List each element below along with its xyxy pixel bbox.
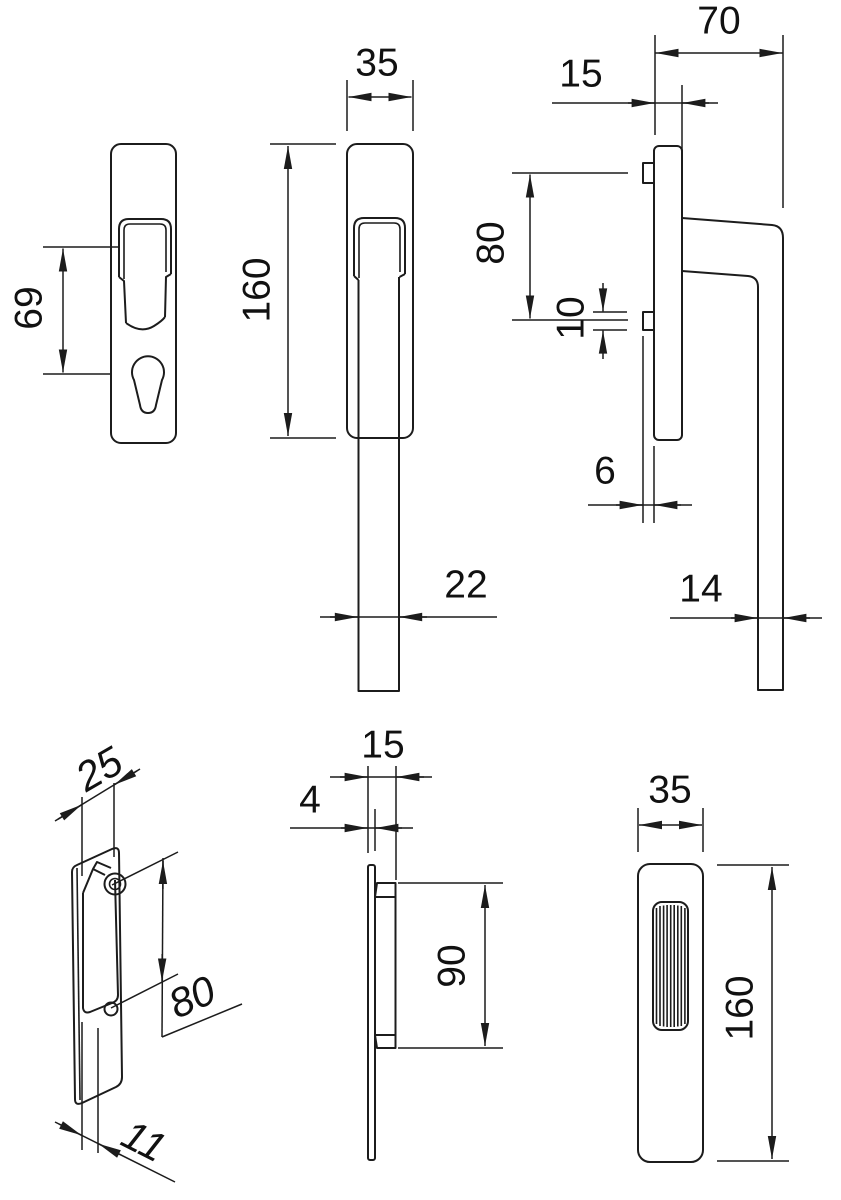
carriage-plate-edge-inner: [77, 868, 80, 1100]
view-pull-front: 35 160: [638, 769, 789, 1163]
grip-recess-inner: [124, 224, 166, 279]
dim-label-80: 80: [162, 967, 223, 1028]
dim-label-14: 14: [679, 568, 722, 611]
dim-label-160: 160: [719, 975, 762, 1040]
extension-lines-10: [593, 312, 627, 330]
handle-plate-outline: [347, 144, 413, 438]
grip-recess-outer: [119, 219, 171, 277]
dim-label-160: 160: [236, 257, 279, 322]
dim-label-10: 10: [550, 296, 593, 339]
pull-plate-side-outline: [368, 865, 375, 1160]
dim-label-15: 15: [361, 724, 404, 767]
extension-lines-6: [643, 336, 654, 523]
view-handle-side: 70 15 80 10 6 14: [470, 0, 823, 690]
dim-label-22: 22: [444, 564, 487, 607]
dim-label-25: 25: [67, 738, 131, 801]
pull-box-outline: [375, 883, 396, 1048]
grip-recess-outer: [354, 218, 405, 276]
technical-drawing-canvas: 69 35 160 22 70 15 80: [0, 0, 841, 1200]
dim-label-80: 80: [470, 221, 513, 264]
grip-bar-outline: [359, 277, 400, 691]
view-carriage-oblique: 25 80 11: [55, 738, 242, 1182]
dim-label-4: 4: [299, 779, 321, 822]
extension-lines-15: [368, 766, 396, 880]
dim-label-70: 70: [697, 0, 740, 43]
view-backplate-front: 69: [8, 144, 177, 443]
dim-label-35: 35: [355, 42, 398, 85]
extension-lines-70: [655, 35, 783, 208]
grip-lower-edge: [119, 274, 171, 329]
dim-arrow-25-left: [58, 805, 82, 819]
extension-lines-160: [270, 144, 336, 438]
side-plate-outline: [654, 146, 682, 440]
dim-label-11: 11: [115, 1111, 174, 1171]
fixing-lug-bottom: [643, 312, 654, 330]
dim-arrow-11-left: [59, 1124, 82, 1135]
euro-cylinder-keyhole: [132, 356, 164, 413]
technical-drawing-page: 69 35 160 22 70 15 80: [0, 0, 841, 1200]
fixing-lug-top: [643, 163, 654, 183]
grip-recess-inner: [359, 223, 400, 278]
dim-label-35: 35: [648, 769, 691, 812]
dim-label-90: 90: [431, 944, 474, 987]
view-pull-side: 15 4 90: [290, 724, 503, 1161]
view-handle-front: 35 160 22: [236, 42, 498, 692]
extension-lines-11: [82, 1022, 98, 1153]
extension-lines-35: [638, 808, 703, 852]
dim-label-69: 69: [8, 286, 51, 329]
extension-lines-69: [43, 247, 119, 374]
latch-block-outline: [83, 880, 118, 1013]
handle-arm-profile: [682, 218, 783, 690]
dim-label-15: 15: [559, 53, 602, 96]
extension-lines-35: [347, 80, 413, 131]
pull-recess-ribs: [657, 905, 685, 1027]
dim-label-6: 6: [594, 450, 616, 493]
grip-neck-notches: [354, 274, 405, 280]
